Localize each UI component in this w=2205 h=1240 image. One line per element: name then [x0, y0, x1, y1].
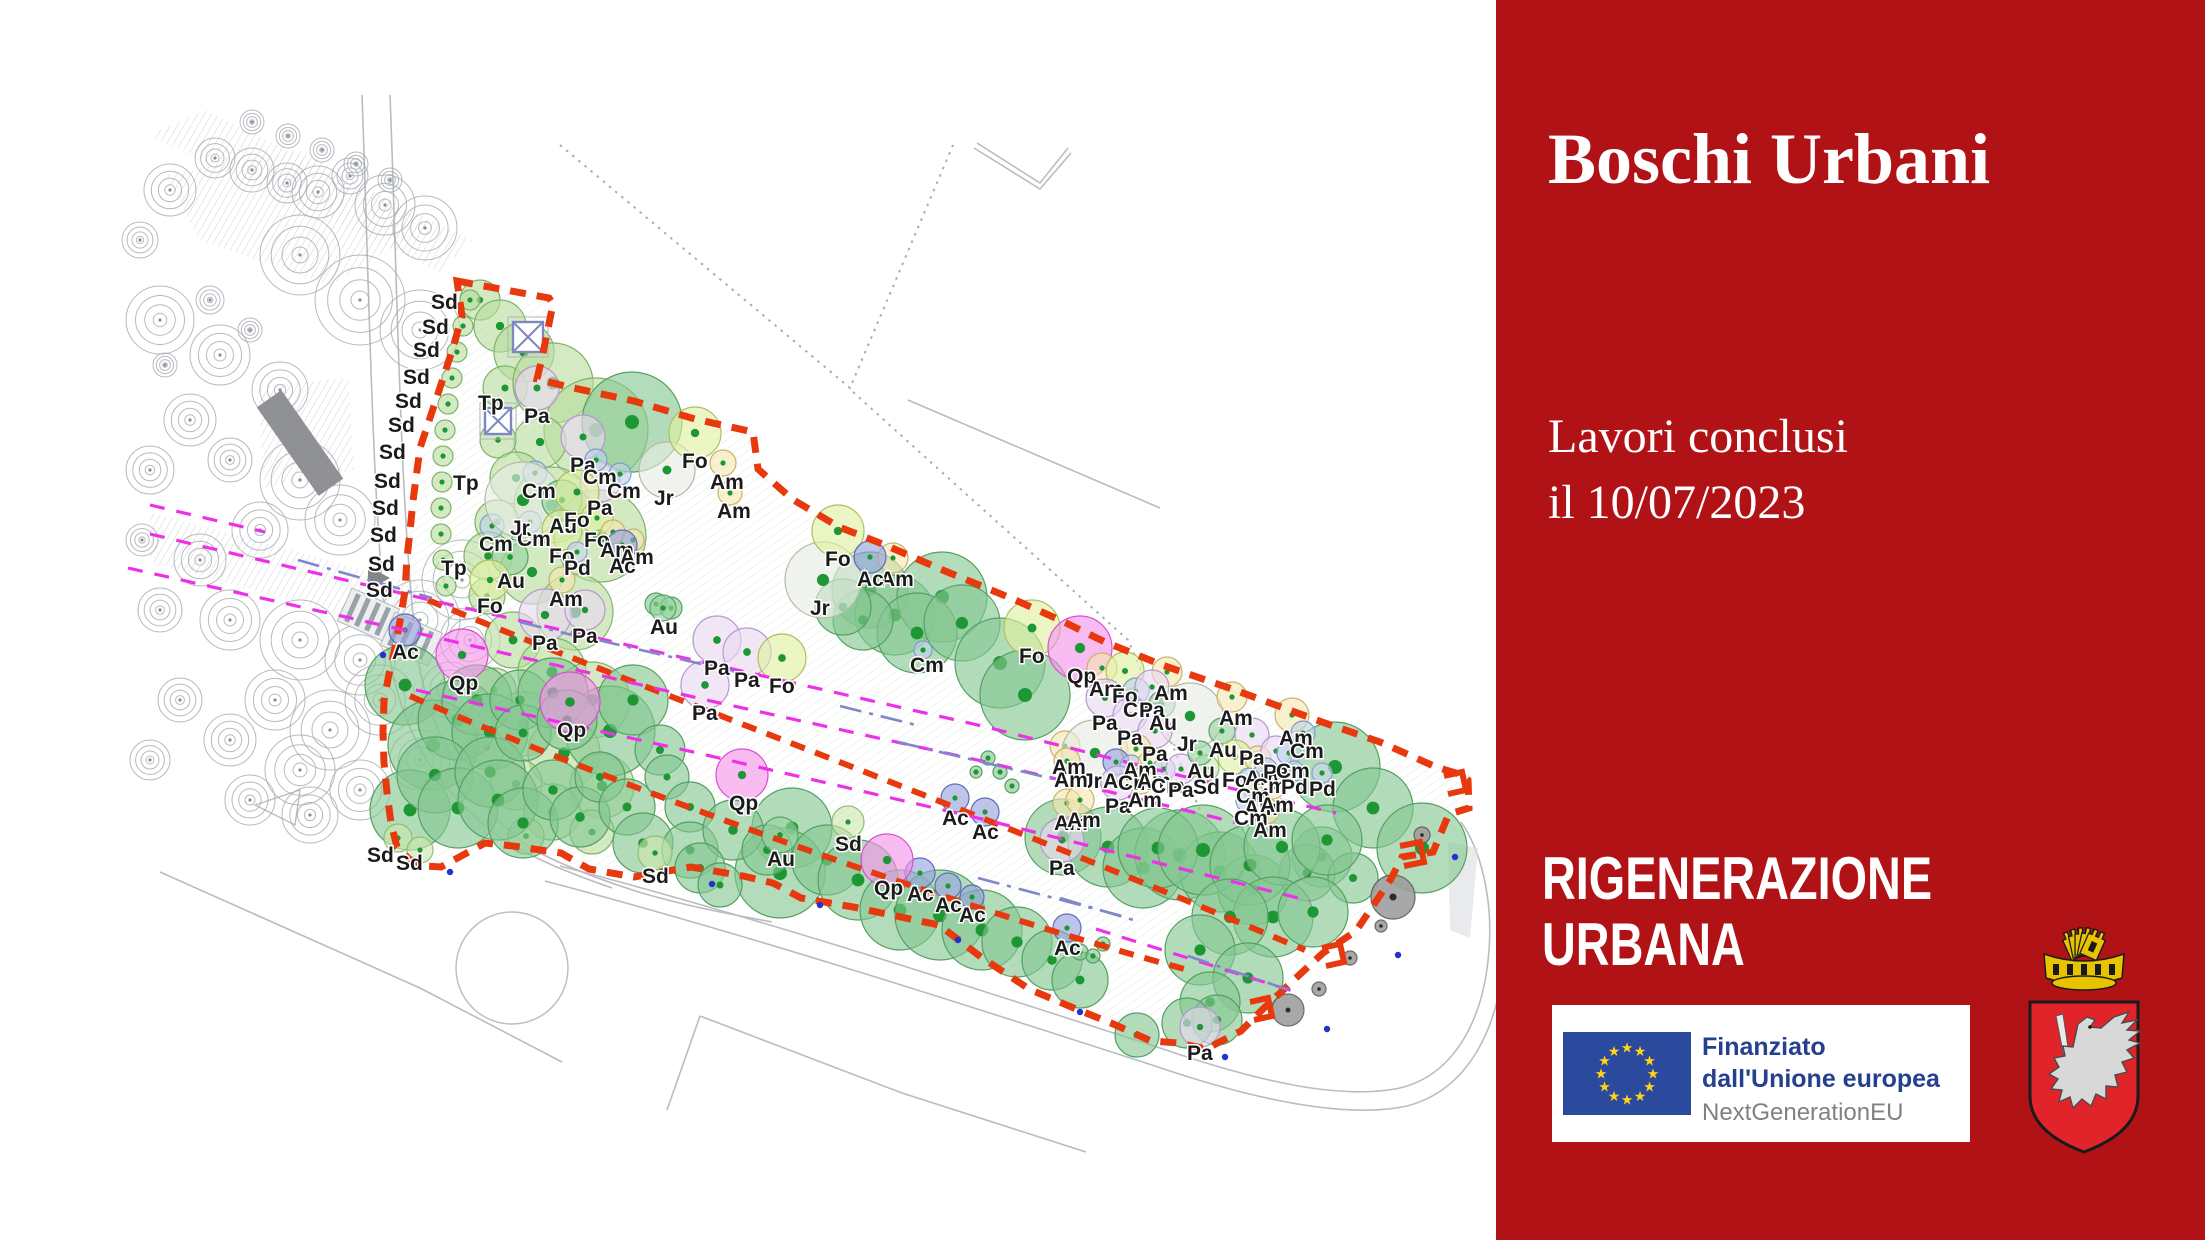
tree-species-label: Jr	[510, 517, 530, 540]
tree-species-label: Cm	[522, 480, 556, 503]
tree-species-label: Am	[1067, 809, 1101, 832]
tree-species-label: Pa	[532, 632, 558, 655]
tree-species-label: Jr	[654, 487, 674, 510]
tree-species-label: Tp	[478, 392, 504, 415]
tree-species-label: Pa	[692, 702, 718, 725]
tree-species-label: Au	[1187, 760, 1215, 783]
tree-species-label: Pa	[1049, 857, 1075, 880]
city-crest-icon	[2016, 920, 2152, 1160]
tree-species-label: Cm	[607, 480, 641, 503]
tree-species-label: Qp	[449, 672, 478, 695]
tree-species-label: Pa	[572, 625, 598, 648]
tree-species-label: Pa	[704, 657, 730, 680]
tree-species-label: Cm	[910, 654, 944, 677]
tree-species-label: Sd	[366, 579, 393, 602]
tree-species-label: Pd	[1309, 778, 1336, 801]
program-line-1: RIGENERAZIONE	[1542, 846, 1932, 912]
tree-species-label: Au	[767, 848, 795, 871]
tree-species-label: Am	[710, 471, 744, 494]
tree-species-label: Sd	[431, 291, 458, 314]
tree-species-label: Fo	[1019, 645, 1045, 668]
tree-species-label: Ac	[1054, 937, 1081, 960]
tree-species-label: Pa	[1187, 1042, 1213, 1065]
tree-species-label: Am	[549, 588, 583, 611]
tree-species-label: Sd	[374, 470, 401, 493]
tree-species-label: Pd	[564, 557, 591, 580]
status-line-1: Lavori conclusi	[1548, 404, 1848, 470]
tree-species-label: Au	[497, 570, 525, 593]
eu-nextgen-label: NextGenerationEU	[1702, 1099, 1903, 1127]
tree-species-label: Sd	[395, 390, 422, 413]
program-line-2: URBANA	[1542, 912, 1932, 978]
eu-flag-icon: ★★★★★★★★★★★★	[1563, 1032, 1691, 1115]
eu-funding-line-1: Finanziato	[1702, 1033, 1826, 1062]
tree-species-label: Sd	[422, 316, 449, 339]
tree-species-label: Ac	[959, 904, 986, 927]
tree-species-label: Sd	[403, 366, 430, 389]
site-plan-panel: PaPaPaPaPaPaPaPaPaPaCmCmCmCmCmCmJrJrJrAu…	[0, 0, 1496, 1240]
tree-species-label: Pa	[1092, 712, 1118, 735]
status-line-2: il 10/07/2023	[1548, 470, 1848, 536]
tree-species-label: Am	[880, 568, 914, 591]
tree-species-label: Fo	[477, 595, 503, 618]
tree-species-label: Fo	[825, 548, 851, 571]
tree-species-label: Cm	[479, 533, 513, 556]
program-title: RIGENERAZIONE URBANA	[1542, 846, 1932, 978]
tree-species-label: Jr	[810, 597, 830, 620]
tree-species-label: Ac	[609, 555, 636, 578]
tree-species-label: Sd	[642, 865, 669, 888]
tree-species-label: Qp	[874, 877, 903, 900]
eu-funding-line-2: dall'Unione europea	[1702, 1065, 1940, 1094]
tree-species-label: Tp	[441, 557, 467, 580]
eu-funding-logo: ★★★★★★★★★★★★ Finanziato dall'Unione euro…	[1552, 1005, 1970, 1142]
tree-species-label: Fo	[769, 675, 795, 698]
tree-species-label: Sd	[379, 441, 406, 464]
svg-text:★: ★	[1608, 1043, 1621, 1059]
tree-species-label: Tp	[453, 472, 479, 495]
tree-species-label: Au	[650, 616, 678, 639]
tree-species-label: Sd	[368, 553, 395, 576]
tree-species-label: Am	[717, 500, 751, 523]
tree-species-label: Sd	[367, 844, 394, 867]
tree-species-label: Sd	[396, 852, 423, 875]
tree-species-label: Ac	[942, 807, 969, 830]
tree-species-label: Pa	[524, 405, 550, 428]
tree-species-label: Ac	[907, 883, 934, 906]
tree-species-label: Au	[1149, 712, 1177, 735]
tree-species-label: Sd	[835, 833, 862, 856]
tree-species-label: Ac	[857, 568, 884, 591]
svg-text:★: ★	[1621, 1092, 1634, 1108]
tree-species-label: Fo	[682, 450, 708, 473]
tree-species-label: Pa	[734, 669, 760, 692]
tree-species-label: Jr	[1177, 733, 1197, 756]
tree-species-label: Sd	[388, 414, 415, 437]
site-plan-map: PaPaPaPaPaPaPaPaPaPaCmCmCmCmCmCmJrJrJrAu…	[0, 0, 1496, 1240]
sidebar: Boschi Urbani Lavori conclusi il 10/07/2…	[1496, 0, 2205, 1240]
page-title: Boschi Urbani	[1548, 118, 1990, 201]
svg-text:★: ★	[1634, 1088, 1647, 1104]
tree-species-label: Am	[1253, 819, 1287, 842]
tree-species-label: Am	[1219, 707, 1253, 730]
tree-species-label: Sd	[370, 524, 397, 547]
tree-species-label: Am	[1128, 789, 1162, 812]
tree-species-label: Sd	[372, 497, 399, 520]
tree-species-label: Sd	[413, 339, 440, 362]
tree-species-label: Am	[1054, 769, 1088, 792]
tree-species-label: Ac	[392, 641, 419, 664]
tree-species-label: Qp	[729, 792, 758, 815]
tree-species-label: Au	[1209, 739, 1237, 762]
svg-text:★: ★	[1621, 1040, 1634, 1056]
status-text: Lavori conclusi il 10/07/2023	[1548, 404, 1848, 536]
tree-species-label: Pa	[1117, 727, 1143, 750]
tree-species-label: Qp	[557, 719, 586, 742]
tree-species-label: Ac	[972, 821, 999, 844]
